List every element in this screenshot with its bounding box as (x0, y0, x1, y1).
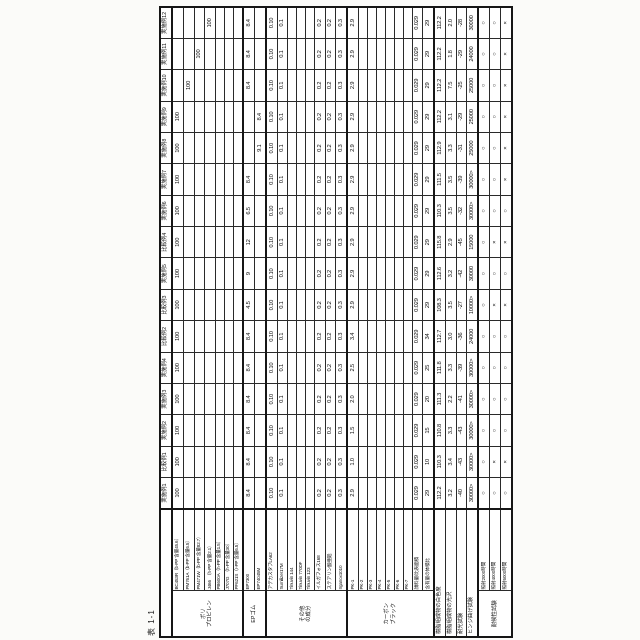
cell: 0.2 (314, 258, 325, 289)
cell (358, 227, 367, 258)
column-header: 比較例3 (160, 289, 172, 320)
cell (243, 133, 254, 164)
cell: 112.2 (434, 478, 445, 509)
cell (215, 384, 224, 415)
cell (183, 446, 194, 477)
cell: 29 (423, 70, 434, 101)
cell (205, 164, 216, 195)
cell (194, 70, 205, 101)
cell (224, 38, 233, 69)
column-header: 比較例2 (160, 321, 172, 352)
cell (205, 446, 216, 477)
cell: 0.2 (314, 321, 325, 352)
cell: ○ (478, 38, 489, 69)
cell (183, 7, 194, 38)
cell (394, 133, 403, 164)
cell (215, 38, 224, 69)
cell (254, 227, 265, 258)
cell (233, 446, 243, 477)
cell (358, 258, 367, 289)
cell: 24000 (467, 38, 478, 69)
cell (376, 7, 385, 38)
cell: 2.9 (445, 227, 456, 258)
cell: 0.3 (336, 38, 347, 69)
cell (288, 7, 297, 38)
cell (306, 352, 315, 383)
cell: 0.2 (325, 7, 336, 38)
cell: 25 (423, 352, 434, 383)
cell: 0.029 (412, 446, 423, 477)
cell (385, 258, 394, 289)
cell (358, 164, 367, 195)
cell (233, 38, 243, 69)
cell: 111.3 (434, 384, 445, 415)
column-header: 比較例1 (160, 446, 172, 477)
cell: 2.9 (347, 227, 358, 258)
cell: 0.3 (336, 258, 347, 289)
cell (376, 101, 385, 132)
cell: × (500, 7, 512, 38)
cell: 0.10 (266, 195, 277, 226)
cell: 112.2 (434, 7, 445, 38)
cell (233, 7, 243, 38)
cell: ○ (500, 321, 512, 352)
cell (205, 289, 216, 320)
cell: 0.10 (266, 321, 277, 352)
cell (367, 446, 376, 477)
cell: 0.2 (314, 70, 325, 101)
cell (367, 7, 376, 38)
cell (224, 7, 233, 38)
cell (358, 446, 367, 477)
cell (194, 258, 205, 289)
cell (288, 321, 297, 352)
cell (376, 321, 385, 352)
cell (358, 289, 367, 320)
cell (194, 101, 205, 132)
cell (385, 227, 394, 258)
row-label: EP7300 (243, 509, 254, 591)
cell (224, 352, 233, 383)
cell: 0.1 (277, 321, 288, 352)
cell: 3.5 (445, 195, 456, 226)
cell: 29 (423, 289, 434, 320)
cell (394, 195, 403, 226)
cell: 9 (243, 258, 254, 289)
cell (297, 415, 306, 446)
cell (385, 352, 394, 383)
table-row: Tinuvin 144 (288, 7, 297, 637)
cell: 0.2 (314, 446, 325, 477)
cell (215, 321, 224, 352)
cell: × (500, 101, 512, 132)
cell (297, 38, 306, 69)
cell (403, 478, 412, 509)
cell (205, 38, 216, 69)
cell (205, 415, 216, 446)
cell (367, 70, 376, 101)
column-header: 実施例11 (160, 38, 172, 69)
cell (224, 70, 233, 101)
cell: 10 (423, 446, 434, 477)
cell: 0.029 (412, 164, 423, 195)
cell (358, 7, 367, 38)
cell (233, 164, 243, 195)
cell: 3.1 (445, 101, 456, 132)
cell: 0.2 (314, 7, 325, 38)
table-row: Tinuvin 123 (306, 7, 315, 637)
cell (358, 101, 367, 132)
cell: 10000> (467, 289, 478, 320)
cell: ○ (478, 7, 489, 38)
cell (215, 289, 224, 320)
cell: 3.5 (445, 164, 456, 195)
cell (403, 164, 412, 195)
cell: 15 (423, 415, 434, 446)
cell (215, 446, 224, 477)
cell: 2.9 (347, 70, 358, 101)
cell: 0.10 (266, 289, 277, 320)
cell: 0.2 (325, 133, 336, 164)
cell (403, 101, 412, 132)
cell: 100 (172, 478, 183, 509)
cell: 8.4 (243, 478, 254, 509)
cell (194, 227, 205, 258)
cell (205, 101, 216, 132)
cell (183, 164, 194, 195)
cell: -36 (456, 321, 467, 352)
cell (183, 101, 194, 132)
column-header: 実施例1 (160, 478, 172, 509)
column-header: 実施例3 (160, 384, 172, 415)
row-label: 耐光試験 (456, 509, 467, 637)
cell: 110.3 (434, 446, 445, 477)
cell: 30000> (467, 384, 478, 415)
cell (297, 289, 306, 320)
cell: 0.2 (314, 227, 325, 258)
cell (306, 446, 315, 477)
row-label: PK-2 (358, 509, 367, 591)
cell: 0.1 (277, 7, 288, 38)
cell (243, 101, 254, 132)
cell (297, 384, 306, 415)
cell (385, 195, 394, 226)
cell (254, 478, 265, 509)
cell (306, 384, 315, 415)
rotated-table-container: 表 1-1 実施例1比較例1実施例2実施例3実施例4比較例2比較例3実施例5比較… (147, 8, 517, 638)
cell (224, 478, 233, 509)
cell: 0.1 (277, 101, 288, 132)
cell: 3.2 (445, 478, 456, 509)
cell: 2.9 (347, 101, 358, 132)
cell: 0.029 (412, 38, 423, 69)
cell: 24000 (467, 321, 478, 352)
cell (306, 415, 315, 446)
cell: 8.4 (243, 321, 254, 352)
scanned-patent-page: { "page": { "title": "表 1-1" }, "table":… (0, 0, 640, 640)
table-row: ステアリン酸亜鉛0.20.20.20.20.20.20.20.20.20.20.… (325, 7, 336, 637)
cell: -29 (456, 38, 467, 69)
cell: 0.1 (277, 258, 288, 289)
cell: 29 (423, 38, 434, 69)
cell: 0.10 (266, 101, 277, 132)
group-label: 耐候性試験 (478, 591, 512, 637)
cell (385, 478, 394, 509)
cell (367, 38, 376, 69)
cell: 0.10 (266, 446, 277, 477)
cell (254, 446, 265, 477)
cell: 0.2 (314, 195, 325, 226)
cell: -42 (456, 258, 467, 289)
cell: 30000 (467, 258, 478, 289)
cell: 0.1 (277, 352, 288, 383)
cell (194, 164, 205, 195)
column-header: 実施例6 (160, 195, 172, 226)
column-header: 実施例10 (160, 70, 172, 101)
cell (394, 101, 403, 132)
cell: 0.10 (266, 164, 277, 195)
cell (215, 415, 224, 446)
cell (194, 415, 205, 446)
column-header: 実施例9 (160, 101, 172, 132)
cell (254, 384, 265, 415)
cell: 0.2 (325, 384, 336, 415)
table-row: 含有量の体積比29101520253429292929292929292929 (423, 7, 434, 637)
column-header: 実施例4 (160, 352, 172, 383)
cell: 112.2 (434, 101, 445, 132)
cell: 0.2 (325, 38, 336, 69)
cell: 2.0 (347, 384, 358, 415)
cell (367, 101, 376, 132)
cell: 0.3 (336, 101, 347, 132)
cell: ○ (490, 478, 501, 509)
cell: 0.10 (266, 70, 277, 101)
cell (215, 195, 224, 226)
cell: ○ (478, 446, 489, 477)
cell (194, 7, 205, 38)
cell: 4.5 (243, 289, 254, 320)
row-label: Sumilizer17M (277, 509, 288, 591)
cell (205, 227, 216, 258)
cell: 0.1 (277, 70, 288, 101)
cell: 0.2 (325, 164, 336, 195)
table-row: 照射4000時間○×○○○○×○×○○○○○○○ (490, 7, 501, 637)
cell (358, 321, 367, 352)
cell: 1.5 (347, 415, 358, 446)
cell (403, 227, 412, 258)
cell (183, 258, 194, 289)
column-header: 実施例12 (160, 7, 172, 38)
cell: 0.1 (277, 164, 288, 195)
group-label: カーボン ブラック (347, 591, 434, 637)
cell (183, 195, 194, 226)
cell: 0.2 (314, 101, 325, 132)
row-label: 照射4000時間 (490, 509, 501, 591)
cell (288, 289, 297, 320)
cell (288, 478, 297, 509)
cell: 100 (194, 38, 205, 69)
cell (205, 321, 216, 352)
cell (394, 38, 403, 69)
cell (288, 70, 297, 101)
table-row: J707G （h-PP 含量30） (224, 7, 233, 637)
cell (254, 164, 265, 195)
cell: 0.10 (266, 352, 277, 383)
cell (367, 133, 376, 164)
cell (254, 38, 265, 69)
cell: ○ (478, 352, 489, 383)
cell (183, 384, 194, 415)
cell: 0.3 (336, 70, 347, 101)
cell: 0.029 (412, 352, 423, 383)
cell (306, 133, 315, 164)
cell: 0.3 (336, 352, 347, 383)
cell: 30000> (467, 446, 478, 477)
cell: 25000 (467, 70, 478, 101)
cell: 9.1 (254, 133, 265, 164)
table-row: PK-2 (358, 7, 367, 637)
cell: 8.4 (243, 352, 254, 383)
cell (233, 384, 243, 415)
cell (376, 384, 385, 415)
cell (233, 478, 243, 509)
cell (297, 133, 306, 164)
cell (215, 478, 224, 509)
cell: 0.1 (277, 195, 288, 226)
cell: ○ (500, 258, 512, 289)
cell (224, 415, 233, 446)
table-row: 照射6000時間○×○○○○×○×○×××××× (500, 7, 512, 637)
cell: 110.3 (434, 195, 445, 226)
cell (385, 7, 394, 38)
cell (205, 70, 216, 101)
cell (233, 258, 243, 289)
cell (172, 38, 183, 69)
cell: 0.2 (325, 195, 336, 226)
cell (194, 289, 205, 320)
cell (358, 70, 367, 101)
table-row: ヒンジ曲げ試験30000>30000>30000>30000>30000>240… (467, 7, 478, 637)
cell (254, 415, 265, 446)
cell (288, 258, 297, 289)
cell: × (500, 70, 512, 101)
cell (376, 227, 385, 258)
cell (358, 384, 367, 415)
cell: 111.5 (434, 164, 445, 195)
cell: 0.029 (412, 70, 423, 101)
cell (172, 7, 183, 38)
row-label: PK-4 (376, 509, 385, 591)
cell (233, 70, 243, 101)
cell: 100 (172, 352, 183, 383)
row-label: BC453R（b-PP 含量45.6） (172, 509, 183, 591)
cell: 29 (423, 227, 434, 258)
cell: ○ (478, 289, 489, 320)
cell: 0.2 (325, 101, 336, 132)
cell (183, 352, 194, 383)
row-label: PK-3 (367, 509, 376, 591)
cell: 6.5 (243, 195, 254, 226)
cell (376, 415, 385, 446)
cell (288, 195, 297, 226)
row-label: J466 （h-PP 含量2.1） (205, 509, 216, 591)
cell: 0.029 (412, 101, 423, 132)
cell (367, 384, 376, 415)
cell: ○ (490, 352, 501, 383)
cell (233, 321, 243, 352)
cell: ○ (478, 227, 489, 258)
table-row: 顔料量/比表面積0.0290.0290.0290.0290.0290.0290.… (412, 7, 423, 637)
cell: 0.3 (336, 7, 347, 38)
cell (358, 38, 367, 69)
cell: 30000> (467, 164, 478, 195)
group-label: EPゴム (243, 591, 266, 637)
cell (376, 352, 385, 383)
column-header: 実施例7 (160, 164, 172, 195)
cell: 100 (172, 384, 183, 415)
cell (215, 133, 224, 164)
cell: × (500, 38, 512, 69)
cell (385, 415, 394, 446)
cell (297, 478, 306, 509)
cell: 8.4 (243, 38, 254, 69)
cell: 0.1 (277, 384, 288, 415)
cell (376, 478, 385, 509)
cell: ○ (478, 258, 489, 289)
cell: ○ (478, 415, 489, 446)
cell: ○ (490, 133, 501, 164)
cell (215, 164, 224, 195)
cell (403, 446, 412, 477)
cell (194, 195, 205, 226)
cell: × (500, 164, 512, 195)
cell: 25000 (467, 101, 478, 132)
cell: 0.2 (314, 164, 325, 195)
cell: 3.3 (445, 352, 456, 383)
row-label: EP74045M (254, 509, 265, 591)
table-row: ポリ プロピレンBC453R（b-PP 含量45.6）1001001001001… (172, 7, 183, 637)
cell (297, 446, 306, 477)
cell (254, 321, 265, 352)
table-body: ポリ プロピレンBC453R（b-PP 含量45.6）1001001001001… (172, 7, 512, 637)
cell: 8.4 (243, 164, 254, 195)
cell (394, 446, 403, 477)
row-label: 樹脂組成物の白色度 (434, 509, 445, 637)
cell (215, 258, 224, 289)
cell (358, 415, 367, 446)
cell (385, 164, 394, 195)
table-row: PM761A（b-PP 含量6.5）100 (183, 7, 194, 637)
cell (376, 446, 385, 477)
table-row: J466 （h-PP 含量2.1）100 (205, 7, 216, 637)
table-row: 樹脂組成物の白色度112.2110.3110.8111.3111.8112.71… (434, 7, 445, 637)
cell: 1.0 (347, 446, 358, 477)
cell: 112.2 (434, 38, 445, 69)
row-label: PB600A（h-PP 含量1.5） (215, 509, 224, 591)
column-header: 実施例2 (160, 415, 172, 446)
cell (403, 258, 412, 289)
cell: 0.3 (336, 446, 347, 477)
cell: 0.029 (412, 415, 423, 446)
table-row: PK-6 (394, 7, 403, 637)
cell (385, 70, 394, 101)
cell: 2.2 (445, 384, 456, 415)
row-label: 含有量の体積比 (423, 509, 434, 591)
cell: 100 (172, 195, 183, 226)
cell (233, 101, 243, 132)
row-label: ステアリン酸亜鉛 (325, 509, 336, 591)
cell: 30000> (467, 352, 478, 383)
